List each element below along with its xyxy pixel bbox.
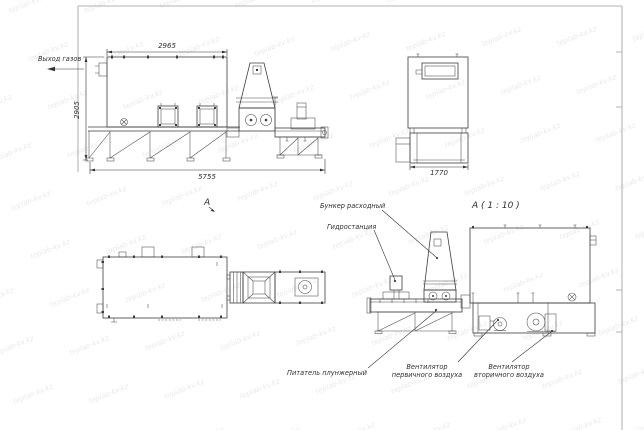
dim-label-1770: 1770 xyxy=(430,169,448,177)
hydro-station-label: Гидростанция xyxy=(327,223,376,231)
plan-view-label: А xyxy=(203,198,210,208)
section-title: А ( 1 : 10 ) xyxy=(471,201,520,211)
dim-label-5755: 5755 xyxy=(198,173,216,181)
primary-fan-label-line2: первичного воздуха xyxy=(392,371,462,379)
drawing-sheet: teplab-kv.kz teplab-kv.kz xyxy=(0,0,644,430)
dim-label-2965: 2965 xyxy=(158,42,176,50)
watermark-layer xyxy=(0,0,644,430)
primary-fan-label-line1: Вентилятор xyxy=(406,363,447,371)
hopper-label: Бункер расходный xyxy=(320,202,386,210)
dim-label-2905: 2905 xyxy=(73,101,81,119)
plunger-feeder-label: Питатель плунжерный xyxy=(287,369,368,377)
drawing-canvas: teplab-kv.kz teplab-kv.kz xyxy=(0,0,644,430)
secondary-fan-label-line2: вторичного воздуха xyxy=(474,371,544,379)
secondary-fan-label-line1: Вентилятор xyxy=(488,363,529,371)
gas-outlet-label: Выход газов xyxy=(38,55,81,63)
